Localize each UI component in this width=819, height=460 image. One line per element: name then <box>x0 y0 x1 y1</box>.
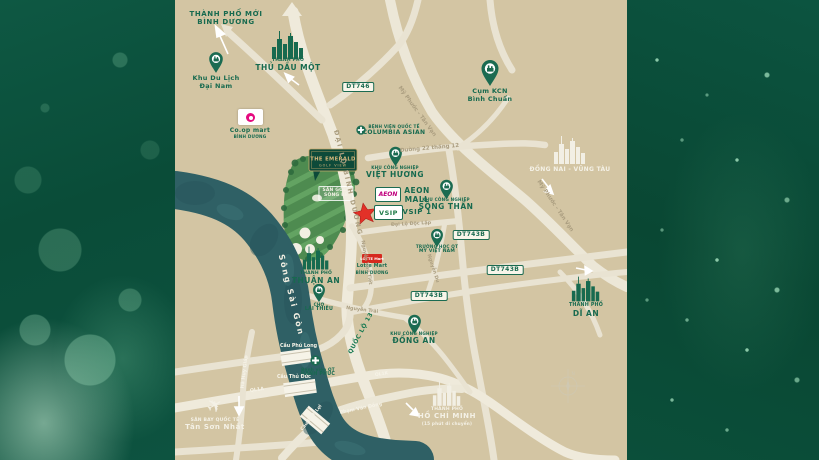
poi-label-columbia-asian: BỆNH VIỆN QUỐC TẾ COLUMBIA ASIAN <box>363 124 426 136</box>
city-label-di-an: THÀNH PHỐ DĨ AN <box>569 303 603 318</box>
road-badge-dt743b-1: DT743B <box>453 230 490 240</box>
bridge-label-phu-long: Cầu Phú Long <box>280 344 317 349</box>
road-badge-dt743b-3: DT743B <box>411 291 448 301</box>
coop-mart-logo <box>238 109 263 125</box>
compass-north-label: N <box>572 371 575 377</box>
poi-label-aeon-mall: AEON MALL <box>404 186 430 204</box>
hanh-phuc-hospital-icon <box>310 355 320 365</box>
coop-mart-swirl-icon <box>246 113 255 122</box>
vsip-logo: VSIP <box>374 205 403 220</box>
city-label-ho-chi-minh: THÀNH PHỐ HỒ CHÍ MINH (15 phút di chuyển… <box>418 407 476 426</box>
aeon-logo: AEON <box>375 187 401 202</box>
city-label-new-binh-duong: THÀNH PHỐ MỚI BÌNH DƯƠNG <box>189 10 262 27</box>
poi-label-lotte-mart: Lotte Mart BÌNH DƯƠNG <box>356 264 389 275</box>
poi-label-cho-lai-thieu: CHỢ LÁI THIÊU <box>305 302 333 313</box>
city-label-dong-nai-vung-tau: ĐỒNG NAI - VŨNG TÀU <box>530 166 611 173</box>
bridge-label-thu-duc: Cầu Thủ Đức <box>277 375 311 380</box>
poi-label-dai-nam: Khu Du Lịch Đại Nam <box>193 75 240 91</box>
emerald-logo-name: THE EMERALD <box>310 157 356 163</box>
poi-label-coop-mart: Co.op mart BÌNH DƯƠNG <box>230 127 270 139</box>
location-map: THE EMERALD GOLF VIEW ✈ <box>0 0 819 460</box>
city-label-thuan-an: THÀNH PHỐ THUẬN AN <box>292 271 340 285</box>
city-label-thu-dau-mot: THÀNH PHỐ THỦ DẦU MỘT <box>255 58 320 72</box>
poi-label-viet-huong: KHU CÔNG NGHIỆP VIỆT HƯƠNG <box>366 165 424 179</box>
poi-label-intl-school: TRƯỜNG HỌC QT MỸ VIỆT NAM <box>416 244 458 254</box>
poi-label-dong-an: KHU CÔNG NGHIỆP ĐỒNG AN <box>390 331 438 345</box>
poi-label-vsip1: VSIP 1 <box>402 208 431 216</box>
road-badge-dt743b-2: DT743B <box>487 265 524 275</box>
poi-label-tan-son-nhat: SÂN BAY QUỐC TẾ Tân Sơn Nhất <box>185 418 245 432</box>
map-artwork: THE EMERALD GOLF VIEW ✈ <box>0 0 819 460</box>
road-badge-dt746: DT746 <box>342 82 374 92</box>
poi-label-kcn-binh-chuan: Cụm KCN Bình Chuẩn <box>468 88 513 104</box>
